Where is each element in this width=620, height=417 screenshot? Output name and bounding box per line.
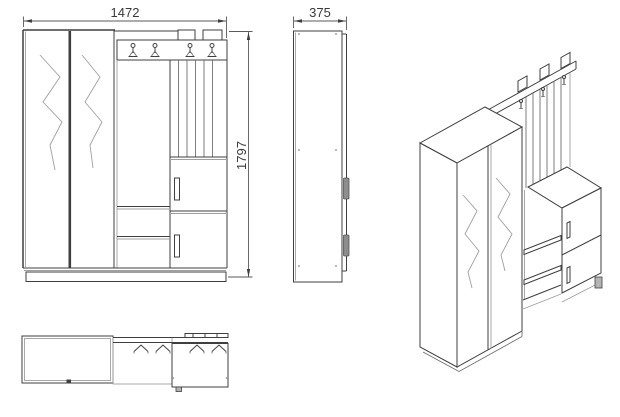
door-handle [344,235,350,256]
technical-drawing-sheet: 1472 1797 [0,0,620,417]
iso-open-shelves [523,190,561,309]
wall-bracket-tab [540,64,549,80]
iso-hook-rail [486,53,576,120]
rail-top-edge [486,61,576,111]
drill-hole-dot [335,149,337,151]
front-width-label: 1472 [111,5,140,20]
wall-bracket-tab [178,30,195,40]
open-shelves-front [117,207,170,240]
column-plinth-edge [523,294,561,309]
wall-bracket-tab [561,53,570,69]
side-view: 375 [294,5,350,282]
door-handle [567,222,570,239]
iso-lower-cabinet [528,167,602,302]
hook-top-icon [190,345,204,354]
cabinet-footprint [172,344,228,388]
wall-bracket-tab [518,76,527,92]
shelf-board [524,236,561,255]
arrowhead-icon [294,19,302,22]
side-depth-dimension: 375 [294,5,347,30]
front-view: 1472 1797 [23,5,253,282]
drill-hole-dot [335,265,337,267]
drill-hole-dot [298,149,300,151]
shelf-board [524,266,561,285]
arrowhead-icon [24,19,32,22]
coat-hook-icon [541,88,545,97]
hook-top-icon [156,345,170,354]
side-depth-label: 375 [309,5,331,20]
side-panel [294,31,343,282]
door-handle [344,178,350,199]
hook-rail-front [114,30,227,60]
wardrobe-front-face [457,127,522,367]
side-body [294,31,350,282]
plan-cabinet [172,344,228,392]
iso-wardrobe [420,107,522,372]
front-width-dimension: 1472 [24,5,227,38]
drill-hole-dot [226,377,228,379]
lower-cabinet-front [170,157,227,257]
mirror-zigzag-decor [82,55,102,168]
drill-hole-dot [298,33,300,35]
wardrobe-footprint [22,336,113,383]
wall-bracket-tab [203,30,222,40]
plan-view [22,334,228,392]
drill-hole-dot [335,33,337,35]
coat-hook-icon [519,100,523,109]
door-divider-mark [67,380,72,384]
wall-bracket-band [185,334,228,338]
plinth [26,272,226,282]
arrowhead-icon [218,19,226,22]
arrowhead-icon [247,32,250,40]
hook-top-icon [212,345,226,354]
front-height-label: 1797 [234,141,249,170]
door-handle [175,235,180,257]
door-handle [567,267,570,284]
arrowhead-icon [338,19,346,22]
door-handle [175,178,180,200]
drill-hole-dot [173,377,175,379]
drawing-svg: 1472 1797 [0,0,620,417]
plan-hook-panel [113,334,228,385]
arrowhead-icon [247,269,250,277]
cabinet-foot [176,387,182,392]
cabinet-foot [595,277,602,288]
mirror-zigzag-decor [40,55,62,170]
plinth-base-front [23,268,227,282]
wardrobe-front [23,30,115,268]
drill-hole-dot [298,265,300,267]
isometric-view [420,53,602,372]
plan-wardrobe [22,336,113,383]
door-divider [69,31,72,268]
coat-hook-icon [562,76,566,85]
column-bottom-edge [523,285,561,300]
front-height-dimension: 1797 [228,32,253,278]
hook-top-icon [134,345,148,354]
wardrobe-side-face [420,143,457,367]
